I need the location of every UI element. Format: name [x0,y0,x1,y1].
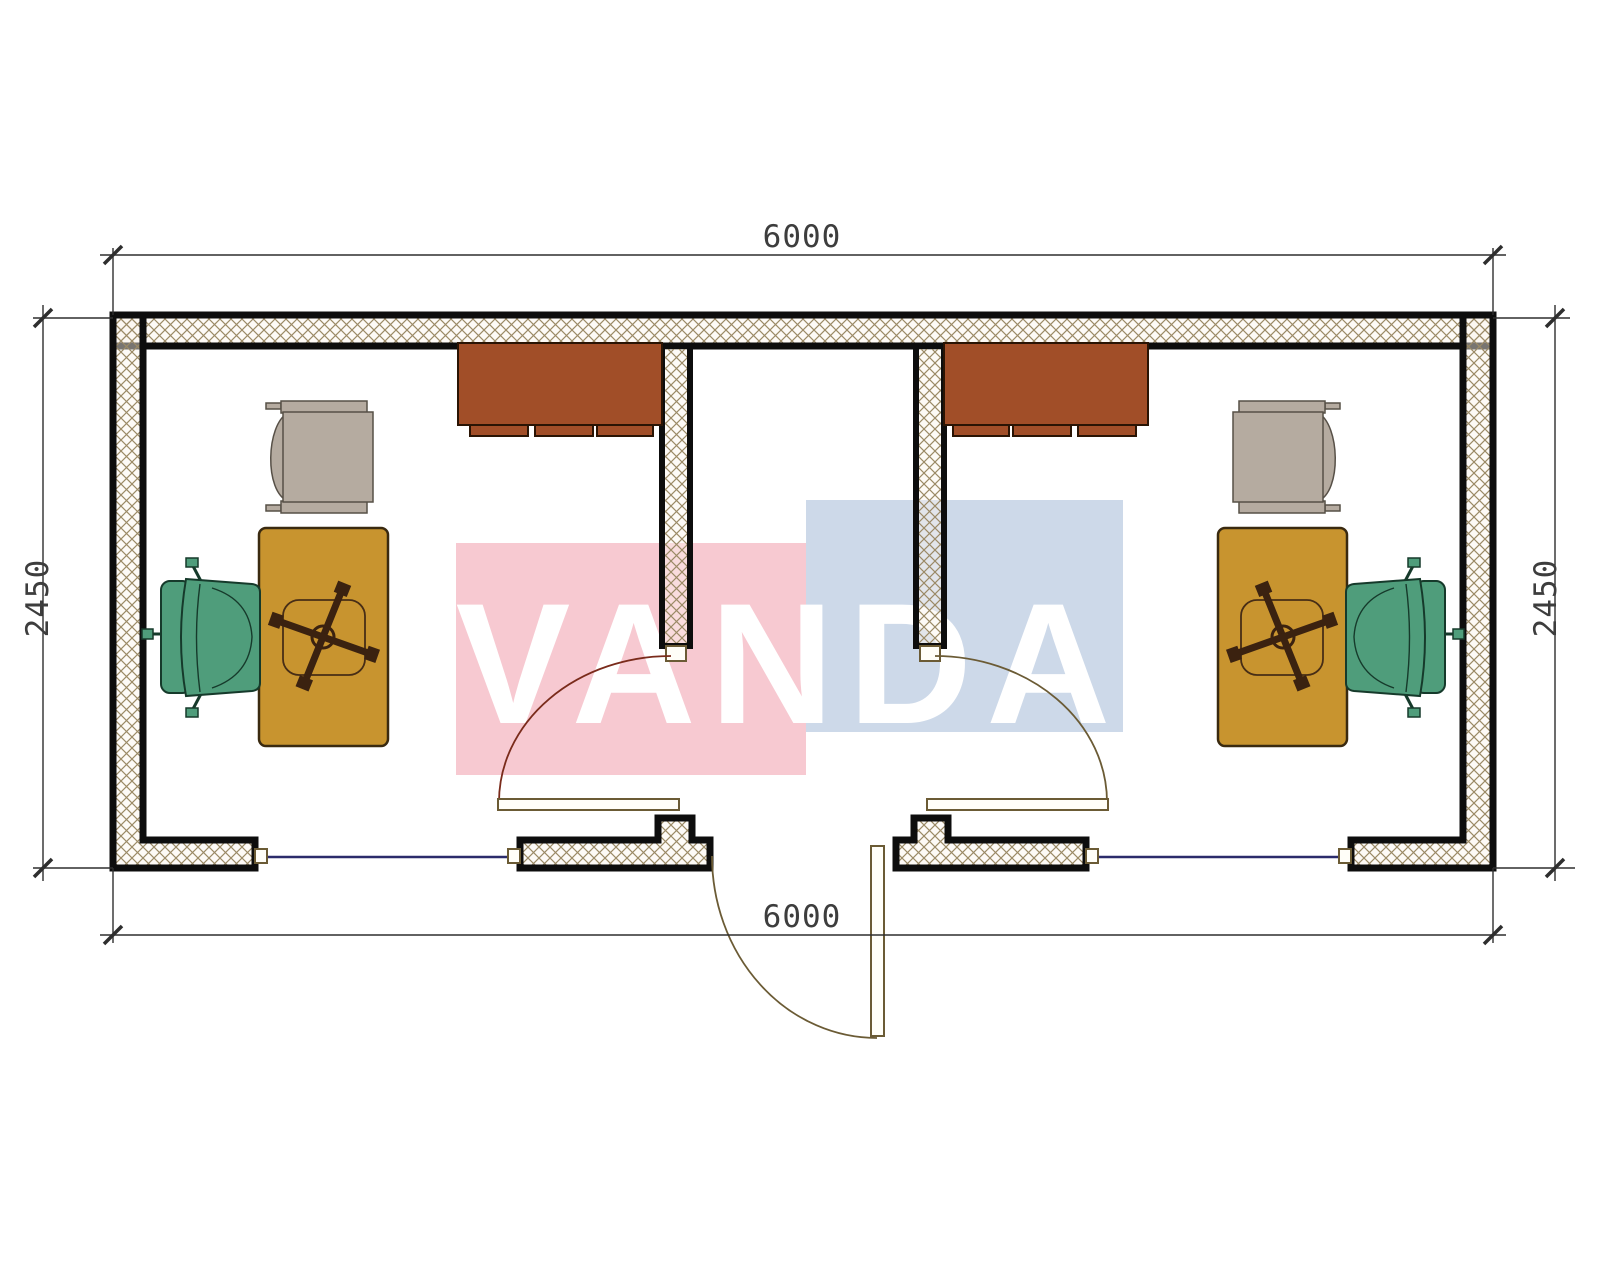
office-chair-caster [142,629,153,639]
floor-plan-svg: VANDA [0,0,1600,1280]
watermark: VANDA [456,500,1125,775]
cabinet-foot [535,425,593,436]
wall-end-cap [1086,849,1098,863]
office-chair-caster [186,708,198,717]
armchair-leg [266,505,281,511]
cabinet-left [458,343,662,436]
armchair-armrest [281,401,367,413]
partition-wall-right [916,346,944,646]
armchair-armrest [281,501,367,513]
entrance-door-swing-arc [712,856,877,1038]
dimension-label-right: 2450 [1528,559,1564,638]
armchair-seat [283,412,373,502]
wall-end-cap [1339,849,1351,863]
partition-end-cap-right [920,646,940,661]
dimension-label-left: 2450 [20,559,56,638]
cabinet-foot [470,425,528,436]
office-chair-left [142,558,260,717]
entrance-door-leaf [871,846,884,1036]
chair-base-hub-center [319,633,327,641]
outer-wall-top [113,315,1493,346]
armchair-leg [266,403,281,409]
partition-end-cap-left [666,646,686,661]
partition-wall-left [662,346,690,646]
door-leaf-left [498,799,679,810]
wall-end-cap [508,849,520,863]
wall-end-cap [255,849,267,863]
cabinet-body [458,343,662,425]
floor-plan-page: VANDA [0,0,1600,1280]
bottom-wall-segment-left [520,818,710,868]
cabinet-foot [597,425,653,436]
dimension-label-top: 6000 [763,219,842,255]
office-chair-seat [181,579,260,696]
armchair-left [266,401,373,513]
dimension-label-bottom: 6000 [763,899,842,935]
bottom-wall-segment-right [896,818,1086,868]
watermark-text: VANDA [456,568,1125,760]
office-chair-caster [186,558,198,567]
door-leaf-right [927,799,1108,810]
